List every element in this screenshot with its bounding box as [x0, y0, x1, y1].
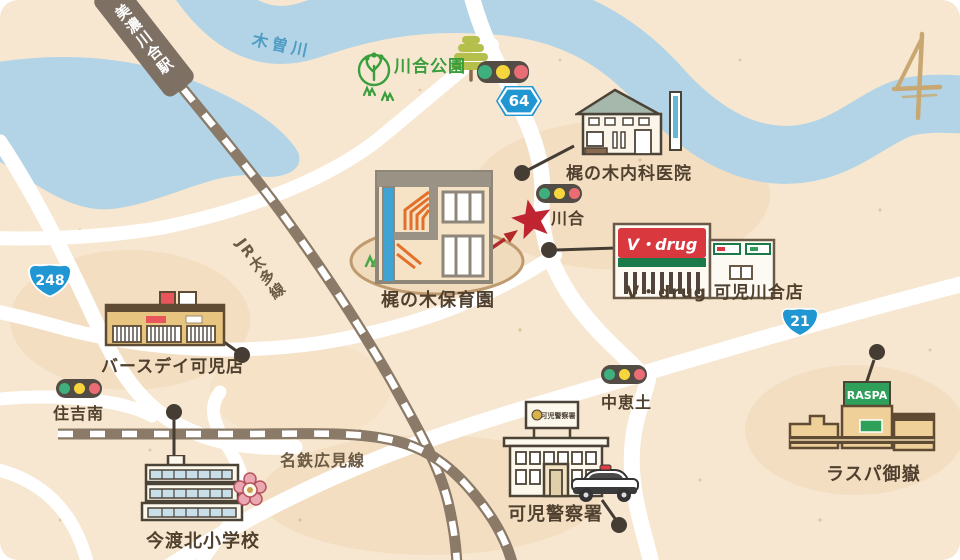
label-sumiyoshi-minami: 住吉南 [53, 400, 104, 424]
label-vdrug: V・drug 可児川合店 [626, 278, 804, 303]
signal-red-light [634, 369, 645, 380]
signal-yellow-light [74, 383, 85, 394]
label-nursery: 梶の木保育園 [381, 286, 495, 312]
raspa-sign-text: RASPA [847, 389, 888, 402]
label-kawai-intersection: 川合 [551, 205, 585, 229]
signal-kawai-park [477, 61, 529, 83]
route-badge-64: 64 [496, 86, 542, 116]
route-badge-248: 248 [27, 264, 73, 297]
label-police: 可児警察署 [508, 500, 603, 526]
signal-green-light [59, 383, 70, 394]
signal-yellow-light [496, 65, 510, 79]
signal-sumiyoshi-minami [56, 379, 102, 398]
school-building-icon [140, 455, 268, 530]
label-school: 今渡北小学校 [146, 527, 260, 553]
label-birthday: バースデイ可児店 [101, 352, 244, 377]
label-nakaedo: 中恵土 [601, 389, 652, 413]
signal-nakaedo [601, 365, 647, 384]
signal-green-light [539, 188, 550, 199]
signal-red-light [569, 188, 580, 199]
signal-kawai [536, 184, 582, 203]
signal-yellow-light [554, 188, 565, 199]
label-kawai-park: 川合公園 [394, 52, 466, 77]
label-raspa: ラスパ御嶽 [826, 460, 921, 486]
route-badge-21: 21 [780, 308, 820, 336]
signal-red-light [514, 65, 528, 79]
map-canvas: V・drug 可児警 [0, 0, 960, 560]
raspa-building-icon: RASPA [786, 380, 940, 470]
signal-red-light [89, 383, 100, 394]
vdrug-sign-text: V・drug [627, 235, 698, 254]
river-pond [0, 57, 299, 209]
clinic-sign-pole [670, 92, 681, 150]
signal-yellow-light [619, 369, 630, 380]
label-clinic: 梶の木内科医院 [566, 159, 692, 184]
signal-green-light [604, 369, 615, 380]
rail-label-meitetsu-hiromi: 名鉄広見線 [280, 447, 365, 471]
park-tree-icon [359, 54, 393, 100]
police-sign-text: 可児警察署 [541, 411, 576, 420]
road-corner [0, 468, 88, 560]
signal-green-light [478, 65, 492, 79]
nursery-building-icon [375, 170, 493, 284]
clinic-building-icon [575, 84, 690, 162]
birthday-building-icon [100, 290, 230, 352]
